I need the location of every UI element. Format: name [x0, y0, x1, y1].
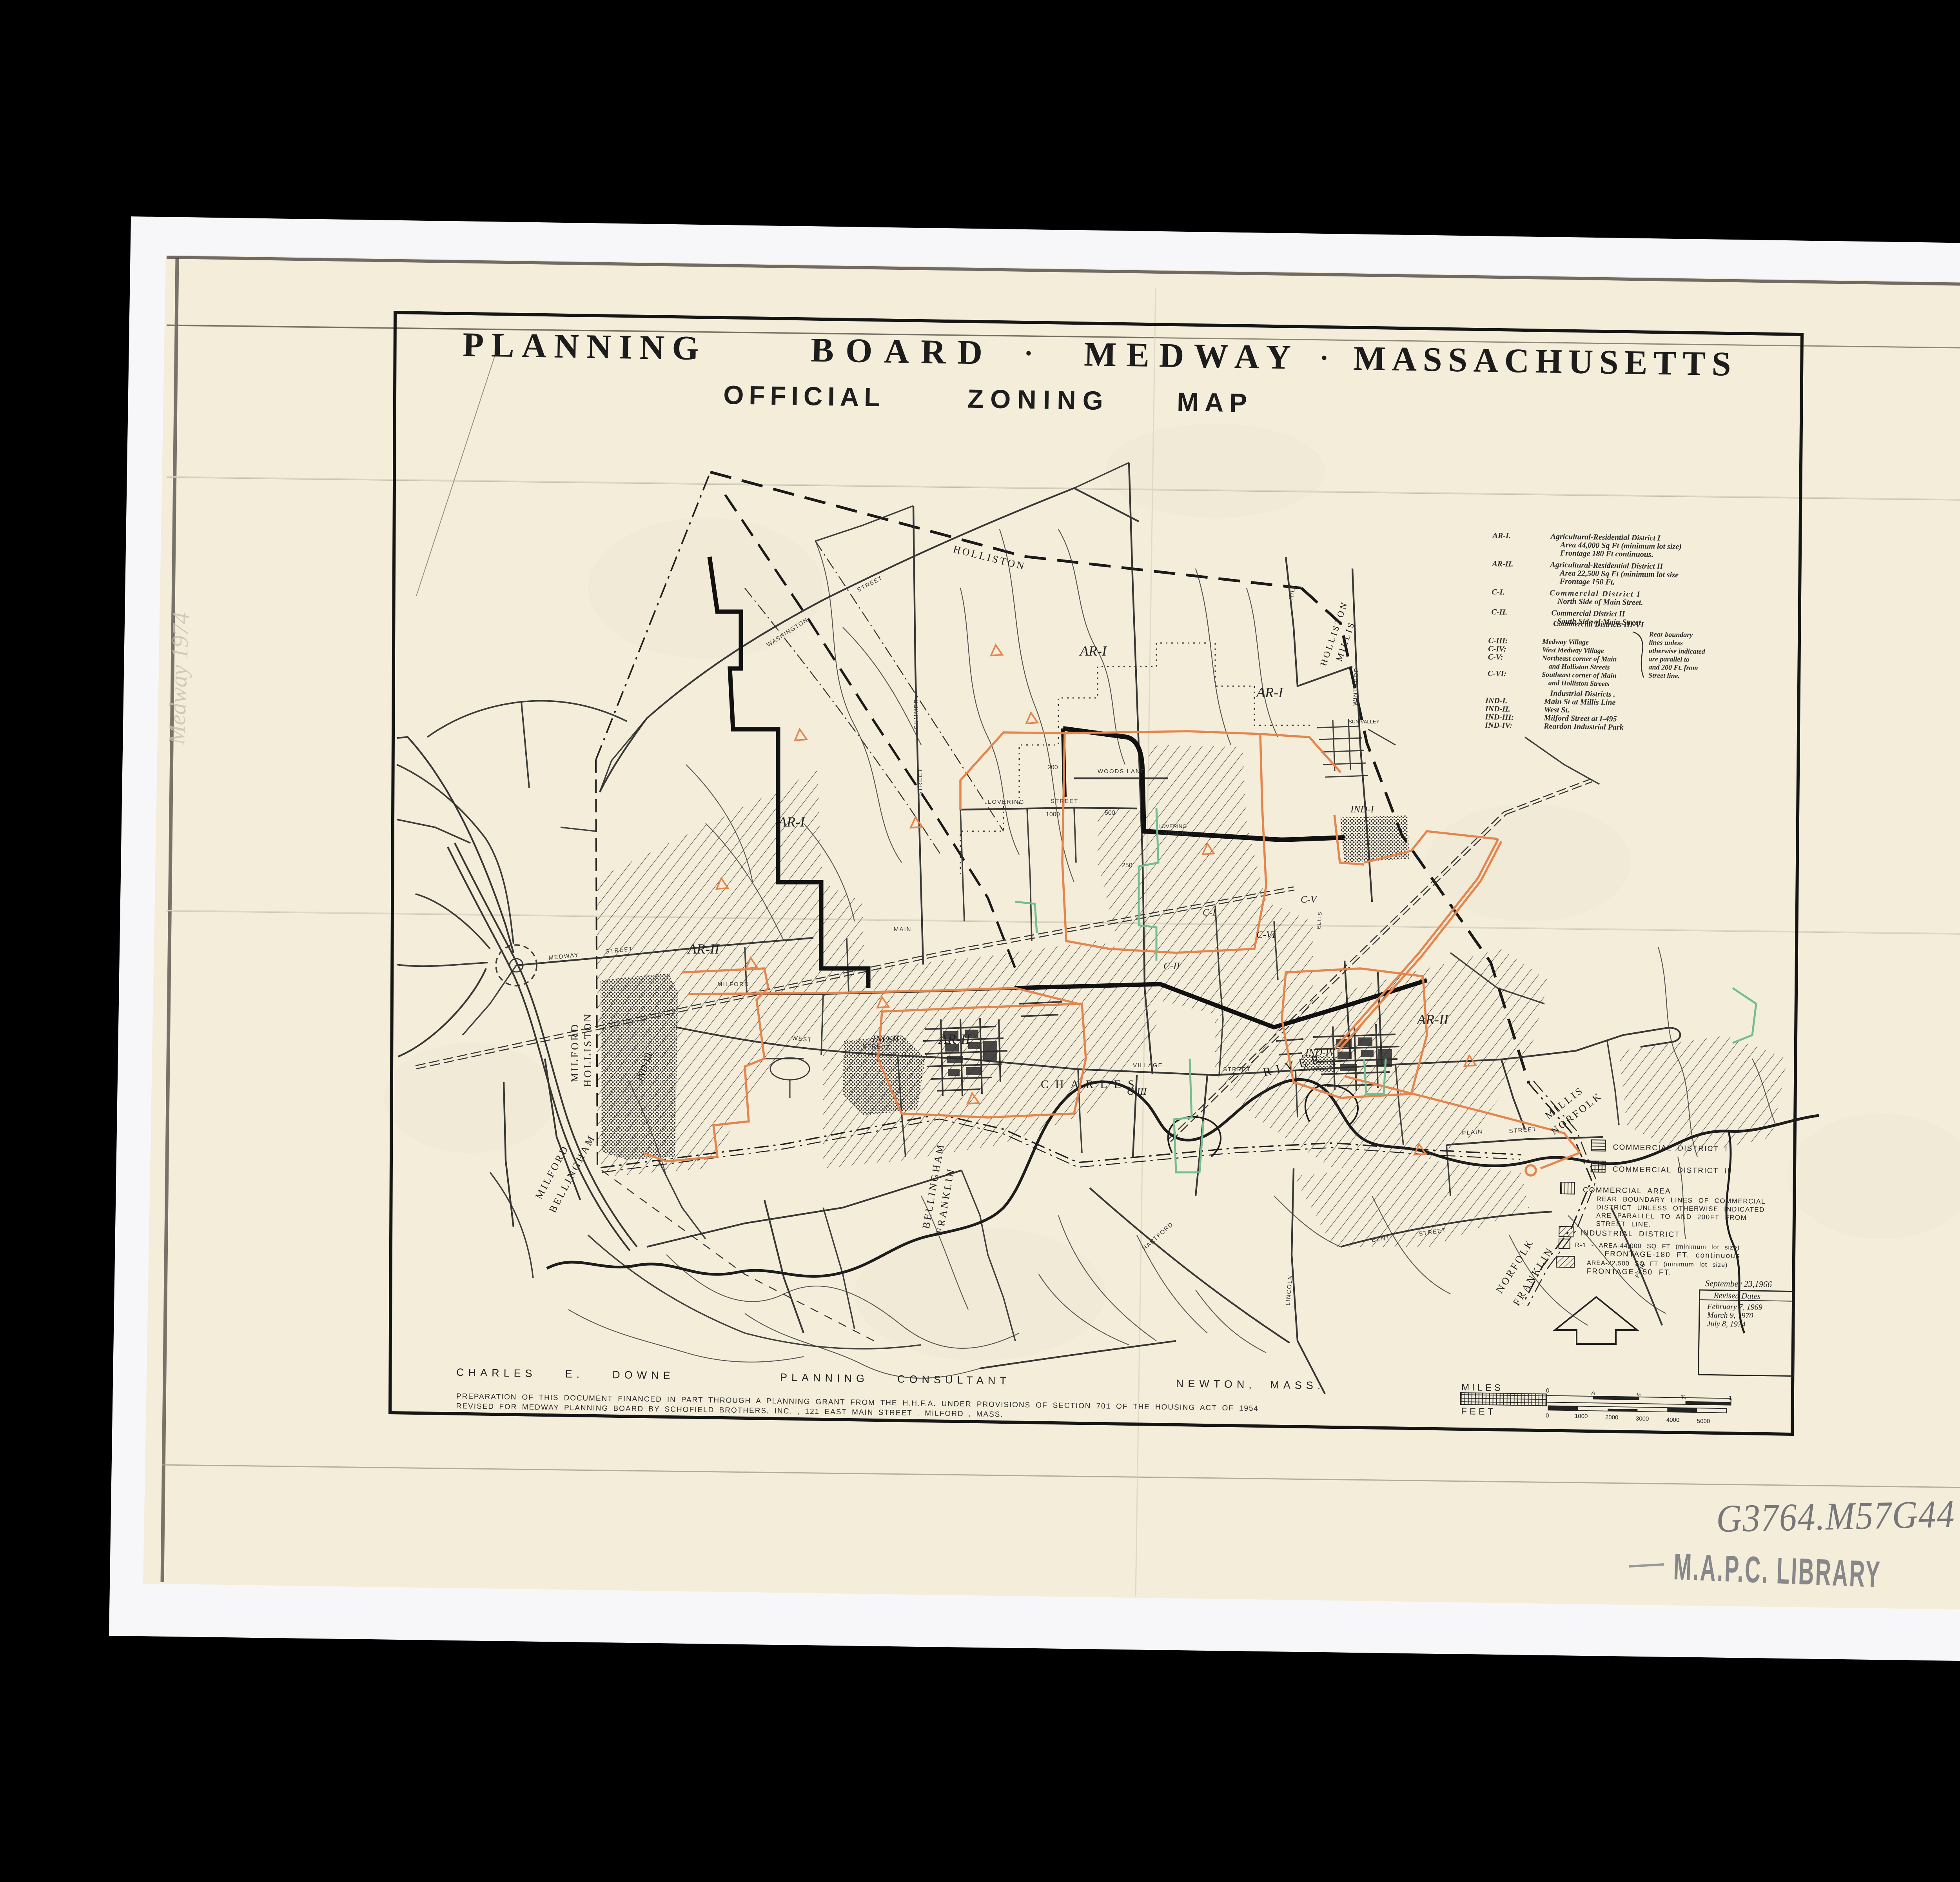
svg-text:AR-I: AR-I: [777, 814, 806, 830]
svg-text:5000: 5000: [1697, 1418, 1710, 1425]
svg-text:250: 250: [1122, 862, 1132, 869]
svg-text:C-II.: C-II.: [1491, 608, 1507, 617]
svg-text:1: 1: [1729, 1395, 1732, 1401]
svg-text:are parallel to: are parallel to: [1649, 655, 1690, 663]
svg-text:STREET LINE.: STREET LINE.: [1596, 1220, 1651, 1228]
svg-text:AR-II.: AR-II.: [1491, 560, 1513, 569]
svg-text:PLANNING: PLANNING: [463, 326, 707, 368]
svg-text:Medway 1974: Medway 1974: [163, 612, 194, 745]
svg-text:500: 500: [1105, 810, 1115, 816]
svg-text:Medway Village: Medway Village: [1542, 638, 1589, 646]
svg-text:STREET: STREET: [1223, 1066, 1251, 1073]
svg-text:Southeast corner of Main: Southeast corner of Main: [1542, 670, 1617, 679]
svg-text:C-III:: C-III:: [1488, 636, 1508, 645]
svg-text:C-V: C-V: [1301, 894, 1318, 905]
svg-text:MILFORD: MILFORD: [717, 981, 750, 988]
svg-text:FRONTAGE-150 FT.: FRONTAGE-150 FT.: [1587, 1267, 1672, 1277]
svg-text:HEIGHTS: HEIGHTS: [1163, 830, 1188, 836]
svg-text:200: 200: [1047, 764, 1058, 771]
svg-text:Northeast corner of Main: Northeast corner of Main: [1542, 654, 1617, 663]
svg-text:September 23,1966: September 23,1966: [1705, 1278, 1772, 1289]
svg-text:NEWTON, MASS.: NEWTON, MASS.: [1176, 1377, 1325, 1392]
svg-text:and Holliston Streets: and Holliston Streets: [1548, 679, 1610, 687]
svg-text:C-V:: C-V:: [1488, 653, 1503, 662]
svg-text:Commercial Districts III-VI: Commercial Districts III-VI: [1553, 619, 1644, 629]
svg-text:VILLAGE: VILLAGE: [1133, 1062, 1163, 1069]
svg-text:Rear boundary: Rear boundary: [1649, 630, 1693, 639]
svg-text:0: 0: [1546, 1387, 1550, 1394]
svg-text:½: ½: [1637, 1392, 1642, 1399]
svg-text:WINTHROP: WINTHROP: [1352, 667, 1360, 706]
svg-text:MAP: MAP: [1177, 387, 1253, 418]
svg-text:SUMMER: SUMMER: [913, 698, 920, 729]
svg-text:IND-I: IND-I: [1350, 804, 1374, 815]
svg-text:STREET: STREET: [917, 768, 924, 796]
svg-text:North Side of Main Street.: North Side of Main Street.: [1557, 597, 1643, 607]
svg-text:COMMERCIAL AREA: COMMERCIAL AREA: [1583, 1186, 1671, 1195]
svg-text:West St.: West St.: [1544, 705, 1570, 714]
svg-text:LOVERING: LOVERING: [988, 799, 1025, 805]
svg-text:and 200 Ft. from: and 200 Ft. from: [1648, 663, 1698, 672]
svg-text:M.A.P.C. LIBRARY: M.A.P.C. LIBRARY: [1673, 1546, 1882, 1595]
svg-text:MAIN: MAIN: [894, 926, 912, 933]
svg-text:C-I: C-I: [1203, 907, 1216, 918]
svg-text:INDUSTRIAL DISTRICT: INDUSTRIAL DISTRICT: [1580, 1229, 1680, 1239]
svg-text:AR-II: AR-II: [1416, 1012, 1449, 1027]
svg-text:C-I.: C-I.: [1492, 588, 1504, 597]
svg-text:SUN VALLEY: SUN VALLEY: [1348, 719, 1380, 725]
svg-text:IND-II: IND-II: [872, 1034, 900, 1045]
svg-text:C-IV:: C-IV:: [1488, 645, 1506, 654]
svg-text:1000: 1000: [1575, 1413, 1588, 1420]
svg-text:¼: ¼: [1590, 1390, 1595, 1396]
svg-text:IND-II.: IND-II.: [1485, 705, 1510, 714]
svg-text:3000: 3000: [1636, 1415, 1649, 1422]
svg-text:Reardon Industrial Park: Reardon Industrial Park: [1543, 722, 1624, 732]
svg-text:Street line.: Street line.: [1648, 671, 1680, 679]
svg-text:MEDWAY: MEDWAY: [1084, 335, 1301, 376]
svg-text:CHARLES: CHARLES: [1041, 1078, 1141, 1091]
svg-text:C-VI: C-VI: [1256, 930, 1276, 940]
svg-text:ZONING: ZONING: [967, 384, 1110, 416]
svg-text:4000: 4000: [1666, 1417, 1680, 1424]
svg-text:Frontage 150 Ft.: Frontage 150 Ft.: [1559, 577, 1615, 587]
svg-text:C-II: C-II: [1163, 961, 1180, 972]
svg-text:lines unless: lines unless: [1649, 638, 1683, 647]
svg-text:G3764.M57G44 1974.M4: G3764.M57G44 1974.M4: [1716, 1489, 1960, 1540]
svg-text:OFFICIAL: OFFICIAL: [723, 380, 886, 412]
svg-text:and Holliston Streets: and Holliston Streets: [1548, 662, 1610, 671]
svg-text:WOODS LANE: WOODS LANE: [1098, 768, 1145, 775]
svg-text:Frontage 180 Ft continuous.: Frontage 180 Ft continuous.: [1560, 549, 1653, 559]
svg-text:MILFORD: MILFORD: [569, 1023, 581, 1082]
svg-text:BOARD: BOARD: [811, 331, 995, 372]
svg-text:Revised Dates: Revised Dates: [1713, 1291, 1761, 1301]
svg-text:STREET: STREET: [1051, 798, 1078, 805]
svg-text:LOVERING: LOVERING: [1158, 823, 1187, 829]
svg-text:·: ·: [1319, 343, 1329, 373]
svg-text:¾: ¾: [1681, 1394, 1686, 1401]
svg-text:AR-I.: AR-I.: [1492, 531, 1510, 540]
svg-text:MASSACHUSETTS: MASSACHUSETTS: [1353, 340, 1737, 383]
svg-text:0: 0: [1546, 1412, 1549, 1419]
svg-text:West Medway Village: West Medway Village: [1542, 646, 1604, 654]
svg-text:July 8, 1974: July 8, 1974: [1707, 1319, 1746, 1329]
svg-text:FEET: FEET: [1461, 1406, 1496, 1417]
svg-text:2000: 2000: [1605, 1414, 1619, 1421]
svg-text:·: ·: [1024, 338, 1034, 369]
svg-text:AR-II: AR-II: [687, 941, 720, 957]
svg-text:C-VI:: C-VI:: [1488, 669, 1506, 678]
svg-text:MILES: MILES: [1461, 1382, 1503, 1393]
svg-text:March 9, 1970: March 9, 1970: [1707, 1311, 1753, 1320]
svg-text:otherwise indicated: otherwise indicated: [1649, 647, 1706, 655]
svg-text:February 7, 1969: February 7, 1969: [1707, 1302, 1762, 1312]
svg-text:AR-II: AR-II: [938, 1031, 971, 1047]
svg-text:IND-I.: IND-I.: [1485, 696, 1507, 705]
svg-text:IND-IV:: IND-IV:: [1485, 721, 1512, 730]
svg-text:HOLLISTON: HOLLISTON: [582, 1012, 593, 1087]
svg-text:1000: 1000: [1046, 811, 1060, 818]
svg-text:AR-I: AR-I: [1256, 685, 1284, 700]
svg-text:AR-I: AR-I: [1079, 643, 1107, 659]
svg-text:IND-III:: IND-III:: [1485, 713, 1514, 722]
